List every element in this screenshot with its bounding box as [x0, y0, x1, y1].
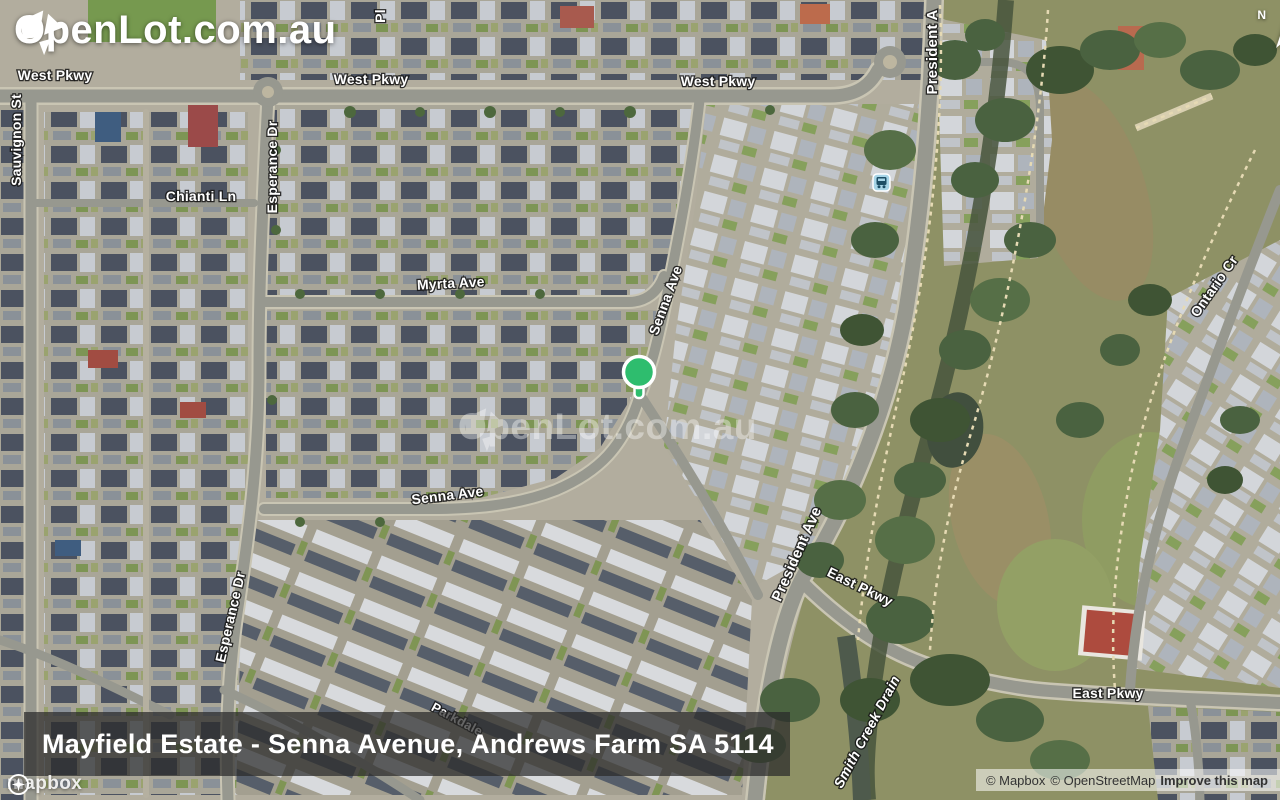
caption-bar: Mayfield Estate - Senna Avenue, Andrews …: [24, 712, 790, 776]
street-label-west-pkwy-1: West Pkwy: [18, 67, 93, 83]
street-label-pl-partial: Pl: [372, 9, 388, 23]
map-canvas[interactable]: West Pkwy West Pkwy West Pkwy Pl Sauvign…: [0, 0, 1280, 800]
street-label-president-ave-top: President A: [924, 9, 941, 94]
street-label-chianti-ln: Chianti Ln: [166, 188, 236, 204]
north-label: N: [1257, 8, 1266, 22]
mapbox-logo[interactable]: mapbox: [7, 773, 82, 795]
street-label-sauvignon-st: Sauvignon St: [8, 94, 24, 186]
improve-this-map-link[interactable]: Improve this map: [1160, 773, 1268, 788]
bus-stop-icon: [873, 174, 890, 191]
street-label-east-pkwy-2: East Pkwy: [1072, 685, 1143, 701]
street-label-esperance-dr-1: Esperance Dr: [264, 120, 280, 213]
openlot-diamond-icon: [14, 8, 66, 60]
attribution-osm-link[interactable]: © OpenStreetMap: [1050, 773, 1155, 788]
street-label-west-pkwy-2: West Pkwy: [334, 71, 409, 87]
mapbox-icon: [7, 773, 30, 796]
attribution-mapbox-link[interactable]: © Mapbox: [986, 773, 1045, 788]
caption-text: Mayfield Estate - Senna Avenue, Andrews …: [24, 729, 774, 760]
attribution-bar: © Mapbox © OpenStreetMap Improve this ma…: [976, 769, 1280, 791]
openlot-logo: OpenLot.com.au: [14, 8, 337, 53]
street-label-west-pkwy-3: West Pkwy: [681, 73, 756, 89]
